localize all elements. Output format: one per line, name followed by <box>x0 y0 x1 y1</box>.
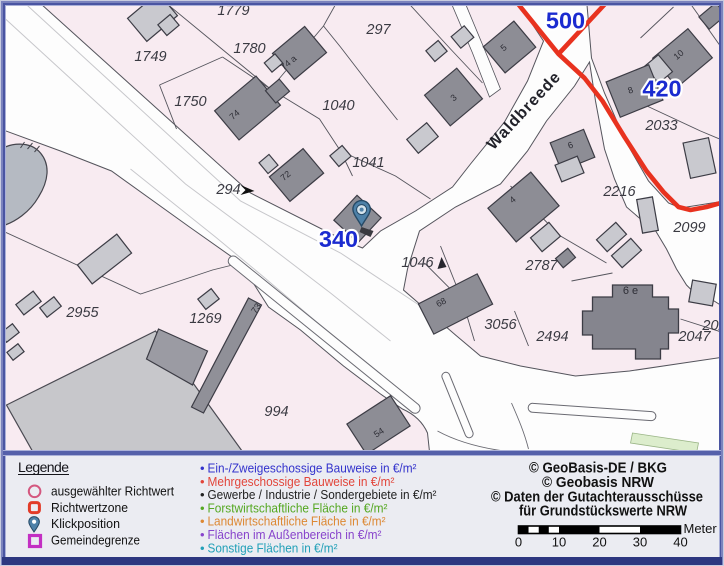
svg-text:Richtwertzone: Richtwertzone <box>51 500 128 515</box>
svg-text:0: 0 <box>515 535 522 550</box>
svg-text:Sonstige Flächen in €/m²: Sonstige Flächen in €/m² <box>208 540 339 555</box>
svg-text:30: 30 <box>633 535 647 550</box>
svg-text:Gemeindegrenze: Gemeindegrenze <box>51 533 140 548</box>
svg-text:20: 20 <box>592 535 606 550</box>
svg-text:für Grundstückswerte NRW: für Grundstückswerte NRW <box>519 504 687 520</box>
svg-text:•: • <box>200 540 205 555</box>
svg-text:10: 10 <box>552 535 566 550</box>
svg-text:Klickposition: Klickposition <box>51 516 120 531</box>
svg-text:40: 40 <box>673 535 687 550</box>
svg-text:ausgewählter Richtwert: ausgewählter Richtwert <box>51 484 174 499</box>
svg-text:Meter: Meter <box>684 521 718 536</box>
svg-text:Legende: Legende <box>18 459 69 475</box>
